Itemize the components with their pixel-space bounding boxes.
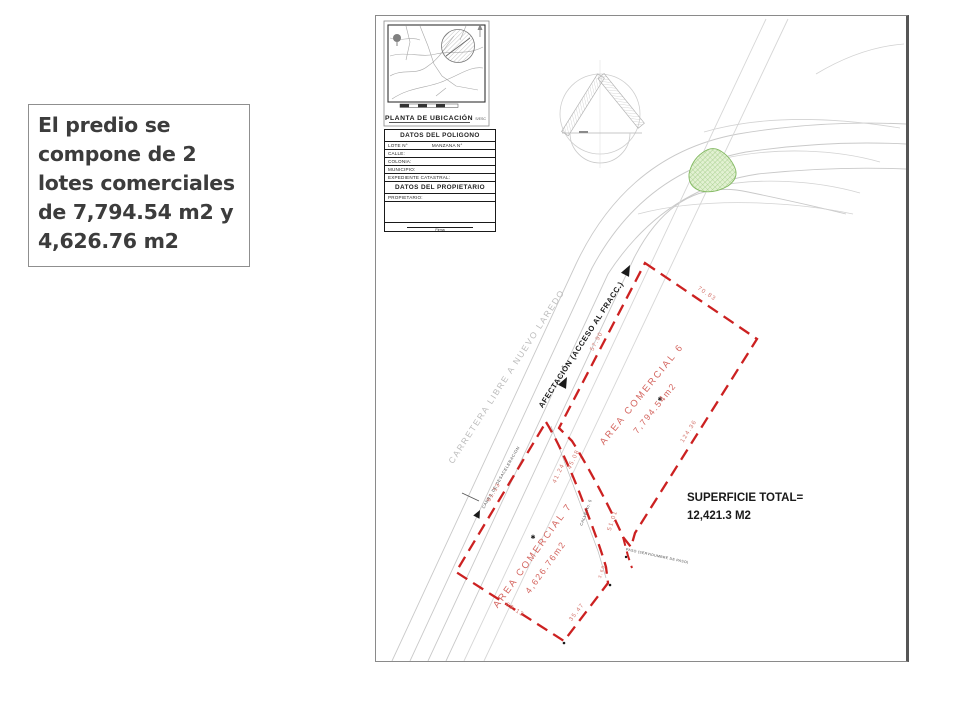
table-header-poligono: DATOS DEL POLIGONO: [385, 130, 495, 142]
signature-area: Firma: [385, 223, 495, 234]
map-scale-note: S/ESC: [475, 117, 486, 121]
svg-text:12,421.3 M2: 12,421.3 M2: [687, 510, 751, 522]
table-row-expediente: EXPEDIENTE CATASTRAL:: [385, 174, 495, 182]
dimension-label: 69.13: [504, 602, 525, 618]
svg-text:SUPERFICIE TOTAL=: SUPERFICIE TOTAL=: [687, 492, 803, 504]
table-header-propietario: DATOS DEL PROPIETARIO: [385, 182, 495, 194]
easement-label: PASO (SERVIDUMBRE DE PASO): [626, 547, 689, 564]
manzana-label: MANZANA N°: [432, 143, 463, 148]
polygon-data-table: DATOS DEL POLIGONO LOTE N° MANZANA N° CA…: [384, 129, 496, 232]
location-map: PLANTA DE UBICACIÓN S/ESC: [384, 21, 489, 126]
map-site-highlight: [442, 30, 475, 63]
lote-label: LOTE N°: [388, 143, 408, 148]
dimension-label: 35.47: [568, 602, 585, 622]
lot6-label: AREA COMERCIAL 6 7,794.54m2: [598, 342, 687, 448]
site-plan-svg: ✱ ✱ CARRETERA LIBRE A NUEVO LAREDO AFECT…: [376, 16, 906, 661]
caption-box: El predio se compone de 2 lotes comercia…: [28, 104, 250, 267]
table-row-colonia: COLONIA:: [385, 158, 495, 166]
green-area: [689, 149, 736, 192]
dimension-label: 124.36: [680, 419, 699, 444]
lot7-label: AREA COMERCIAL 7 4,626.76m2: [491, 501, 575, 610]
caption-text: El predio se compone de 2 lotes comercia…: [38, 111, 240, 256]
table-row-calle: CALLE:: [385, 150, 495, 158]
dimension-label: 41.24: [552, 463, 566, 485]
highway-label: CARRETERA LIBRE A NUEVO LAREDO: [446, 287, 566, 465]
table-empty-cell: [385, 202, 495, 223]
svg-text:✱: ✱: [530, 534, 535, 541]
dimension-label: 3.69: [597, 564, 606, 579]
site-plan-sheet: ✱ ✱ CARRETERA LIBRE A NUEVO LAREDO AFECT…: [375, 15, 909, 662]
map-title: PLANTA DE UBICACIÓN: [385, 113, 473, 122]
table-row-municipio: MUNICIPIO:: [385, 166, 495, 174]
table-row-lote: LOTE N° MANZANA N°: [385, 142, 495, 150]
lot7-boundary: [456, 422, 608, 641]
svg-text:AREA COMERCIAL 7: AREA COMERCIAL 7: [491, 501, 575, 610]
entrance-structure: [560, 60, 644, 168]
table-row-propietario: PROPIETARIO:: [385, 194, 495, 202]
dimension-label: 51.01: [607, 510, 619, 532]
superficie-total: SUPERFICIE TOTAL= 12,421.3 M2: [687, 492, 803, 522]
street-label: CALLE No. 5: [578, 498, 592, 526]
map-scale-bar: [400, 104, 458, 107]
signature-label: Firma: [435, 229, 444, 233]
